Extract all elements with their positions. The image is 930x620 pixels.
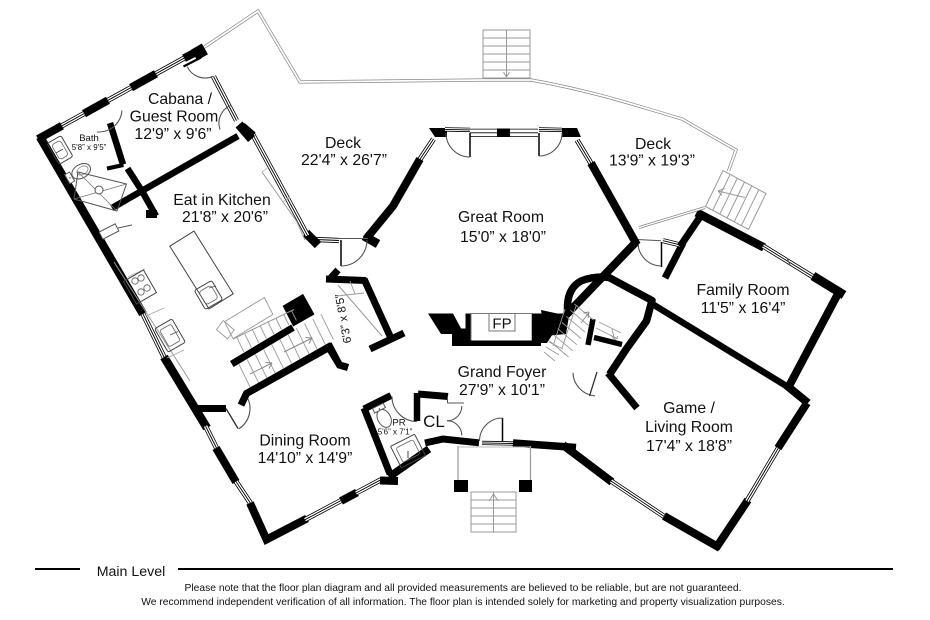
- svg-text:Eat in Kitchen: Eat in Kitchen: [173, 192, 270, 209]
- svg-text:12'9” x 9'6”: 12'9” x 9'6”: [134, 126, 211, 143]
- svg-text:Game /: Game /: [663, 400, 715, 417]
- svg-text:CL: CL: [423, 412, 445, 431]
- svg-text:22'4” x 26'7”: 22'4” x 26'7”: [301, 152, 387, 169]
- svg-text:27'9” x 10'1”: 27'9” x 10'1”: [459, 382, 545, 399]
- svg-text:15'0” x 18'0”: 15'0” x 18'0”: [460, 229, 546, 246]
- svg-text:17'4” x 18'8”: 17'4” x 18'8”: [646, 438, 732, 455]
- svg-text:5'6” x 7'1”: 5'6” x 7'1”: [378, 428, 413, 437]
- svg-text:Main Level: Main Level: [97, 564, 166, 580]
- svg-text:21'8” x 20'6”: 21'8” x 20'6”: [182, 209, 268, 226]
- svg-text:11'5” x 16'4”: 11'5” x 16'4”: [701, 300, 786, 317]
- svg-text:Deck: Deck: [635, 136, 671, 153]
- svg-text:Cabana /: Cabana /: [148, 91, 213, 108]
- svg-text:We recommend independent verif: We recommend independent verification of…: [141, 597, 785, 608]
- svg-text:Guest Room: Guest Room: [130, 109, 219, 126]
- svg-text:Grand Foyer: Grand Foyer: [458, 364, 547, 381]
- svg-text:Deck: Deck: [325, 135, 361, 152]
- svg-text:FP: FP: [492, 316, 511, 333]
- svg-text:Great Room: Great Room: [458, 209, 544, 226]
- svg-text:14'10” x 14'9”: 14'10” x 14'9”: [258, 450, 353, 467]
- svg-text:Living Room: Living Room: [645, 419, 733, 436]
- svg-text:Dining Room: Dining Room: [259, 433, 350, 450]
- svg-text:5'8” x 9'5”: 5'8” x 9'5”: [72, 143, 107, 152]
- svg-text:Please note that the floor pla: Please note that the floor plan diagram …: [185, 583, 742, 594]
- svg-text:13'9” x 19'3”: 13'9” x 19'3”: [609, 153, 695, 170]
- svg-text:Family Room: Family Room: [696, 282, 789, 299]
